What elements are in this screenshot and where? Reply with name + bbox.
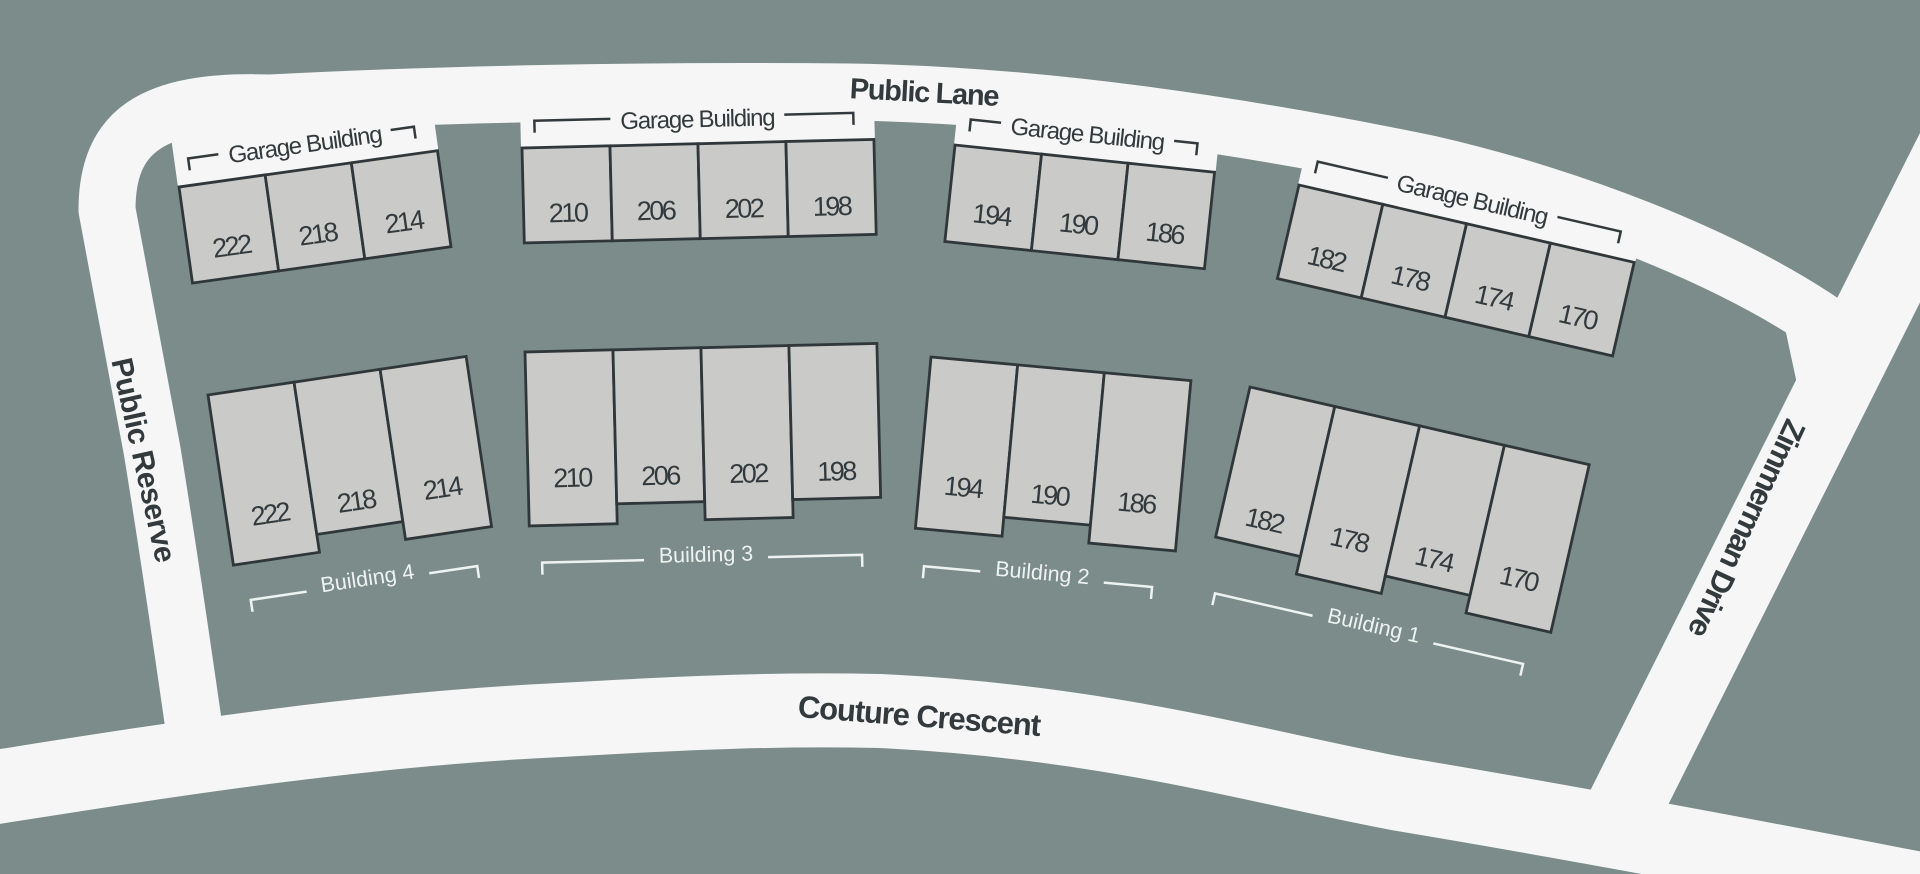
svg-text:210: 210 [553,462,593,493]
svg-text:222: 222 [249,496,292,531]
svg-text:194: 194 [943,471,986,505]
svg-text:186: 186 [1116,487,1158,520]
svg-text:Building 3: Building 3 [659,541,754,567]
svg-text:198: 198 [817,456,857,487]
svg-text:190: 190 [1029,479,1071,512]
svg-text:218: 218 [335,483,378,518]
svg-text:186: 186 [1144,216,1186,250]
svg-text:210: 210 [548,197,588,228]
svg-text:Garage Building: Garage Building [620,104,775,135]
svg-text:214: 214 [383,204,427,239]
svg-text:190: 190 [1058,207,1100,241]
svg-text:206: 206 [641,460,681,491]
svg-text:214: 214 [421,470,465,506]
svg-text:206: 206 [636,195,676,226]
svg-text:218: 218 [297,217,340,252]
svg-text:198: 198 [812,191,852,222]
svg-text:194: 194 [971,198,1014,232]
svg-text:202: 202 [729,458,769,489]
svg-text:202: 202 [724,193,764,224]
svg-text:222: 222 [211,229,254,264]
